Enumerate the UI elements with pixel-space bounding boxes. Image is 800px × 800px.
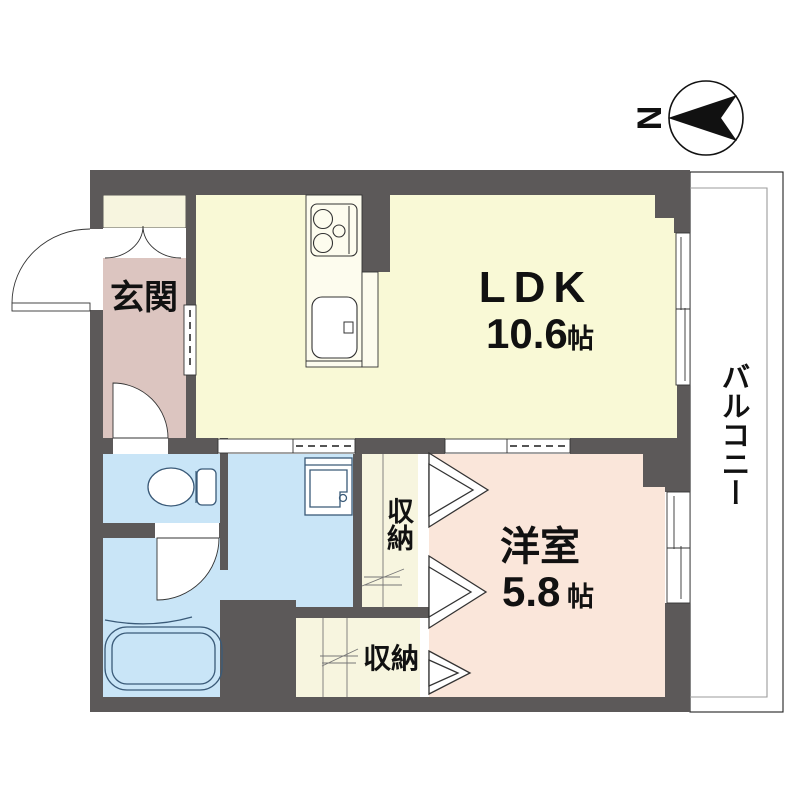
- front-door-swing-arc: [12, 229, 90, 303]
- entrance-label: 玄関: [110, 279, 178, 317]
- western-room-window: [667, 492, 690, 603]
- compass-north-label: N: [631, 106, 669, 131]
- wall-step-a: [655, 195, 690, 218]
- ldk-floor: [196, 195, 677, 445]
- sink-faucet: [344, 322, 353, 333]
- front-door-leaf: [12, 303, 90, 311]
- toilet-icon: [148, 468, 216, 506]
- wall-top: [90, 170, 690, 195]
- wall-toilet-bath-a: [103, 523, 155, 538]
- western-window-frame: [667, 492, 690, 603]
- stove-icon: [311, 204, 357, 256]
- wall-storage-upper-left: [353, 454, 362, 608]
- toilet-bowl: [148, 468, 194, 506]
- vanity-icon: [305, 458, 352, 515]
- wall-hall-stub: [103, 438, 113, 454]
- wall-storage-lower-top: [296, 607, 430, 618]
- wall-bottom: [90, 697, 690, 712]
- storage-upper-label: 収納: [383, 497, 414, 551]
- kitchen-sink-icon: [312, 297, 357, 358]
- balcony-label: バルコニー: [717, 362, 750, 507]
- compass: N: [631, 81, 743, 155]
- storage-upper-jamb: [418, 454, 429, 608]
- ldk-window: [676, 233, 690, 385]
- washroom-bath-opening: [220, 570, 228, 600]
- wall-toilet-bath-b: [219, 523, 228, 538]
- wall-bath-right: [220, 600, 228, 697]
- floor-plan-page: N 玄関 LDK 10.6 帖 洋室 5.8 帖 収納 収納 バルコニー: [0, 0, 800, 800]
- wall-left-lower: [90, 310, 103, 712]
- storage-lower-label: 収納: [363, 642, 419, 674]
- toilet-tank: [197, 469, 216, 505]
- front-door-opening: [90, 229, 103, 310]
- western-room-area-value: 5.8: [502, 568, 560, 615]
- wall-bottom-filler: [228, 600, 296, 712]
- bath-door-opening: [155, 523, 219, 538]
- floor-plan-drawing: N 玄関 LDK 10.6 帖 洋室 5.8 帖 収納 収納 バルコニー: [0, 0, 800, 800]
- ldk-label: LDK: [479, 263, 593, 312]
- wall-mid-c: [570, 438, 677, 454]
- shoe-cabinet: [103, 195, 186, 228]
- wall-kitchen-pillar: [360, 195, 390, 272]
- wall-mid-b: [355, 438, 445, 454]
- western-room-label: 洋室: [500, 525, 580, 569]
- western-room-area-unit: 帖: [567, 582, 594, 612]
- wall-toilet-washroom: [220, 438, 228, 570]
- ldk-area-unit: 帖: [567, 324, 594, 354]
- wall-entrance-ldk-upper: [186, 195, 196, 305]
- stove-body: [311, 204, 357, 256]
- kitchen-counter-panel: [362, 272, 378, 367]
- ldk-area-value: 10.6: [486, 310, 568, 357]
- wall-step-b: [674, 218, 690, 233]
- wall-entrance-ldk-lower: [186, 375, 196, 438]
- wall-right-c: [665, 603, 690, 712]
- shoe-cabinet-door-area: [103, 228, 186, 258]
- wall-right-b: [677, 385, 690, 443]
- wall-mid-a: [168, 438, 218, 454]
- wall-left-upper: [90, 195, 103, 229]
- storage-lower-jamb: [420, 618, 429, 697]
